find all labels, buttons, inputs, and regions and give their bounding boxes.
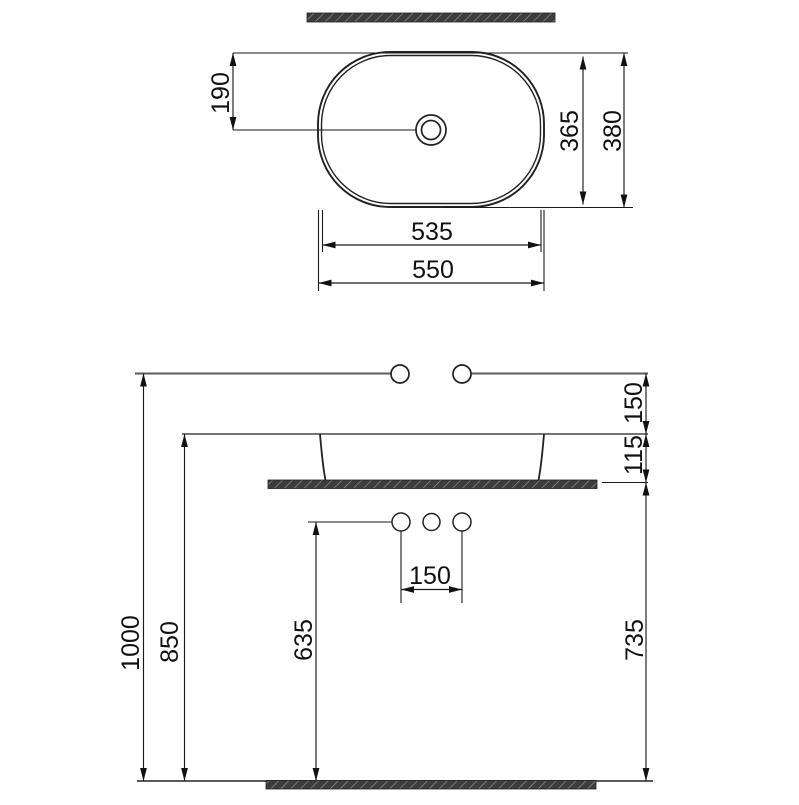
top-view: 190 365 380 535 550 <box>207 13 633 291</box>
front-view: 150 1000 850 635 735 150 <box>117 365 653 789</box>
dim-label-850: 850 <box>156 621 184 663</box>
dim-depth-inner: 365 <box>556 57 584 205</box>
dim-label-550: 550 <box>412 256 454 284</box>
dim-label-380: 380 <box>599 110 627 152</box>
basin-profile-left-edge <box>320 434 326 480</box>
technical-drawing-page: 190 365 380 535 550 <box>0 0 799 800</box>
dim-total-height: 1000 <box>117 374 145 782</box>
dim-drain-from-back: 190 <box>207 53 235 130</box>
dim-width-outer: 550 <box>319 256 545 284</box>
dim-counter-height: 735 <box>621 483 649 782</box>
dim-depth-outer: 380 <box>599 53 627 208</box>
drain-outer-circle <box>416 115 446 145</box>
washbasin-drawing-svg: 190 365 380 535 550 <box>0 0 799 800</box>
dim-basin-above-counter: 115 <box>620 434 648 483</box>
outlet-circle-left <box>392 513 410 531</box>
drain-inner-circle <box>422 121 441 140</box>
dim-supply-above-rim: 150 <box>620 374 648 435</box>
dim-label-365: 365 <box>556 110 584 152</box>
dim-label-150-top: 150 <box>620 382 648 424</box>
countertop-hatch-bar <box>268 480 597 489</box>
dim-rim-height: 850 <box>156 434 185 781</box>
outlet-circle-right <box>453 513 471 531</box>
dim-width-inner: 535 <box>323 218 542 246</box>
supply-circle-left <box>391 365 409 383</box>
dim-label-535: 535 <box>411 218 453 246</box>
basin-profile-right-edge <box>539 434 545 480</box>
dim-label-635: 635 <box>290 619 318 661</box>
dim-label-115: 115 <box>620 435 648 475</box>
dim-label-1000: 1000 <box>117 615 145 671</box>
dim-label-150-spacing: 150 <box>409 562 451 590</box>
dim-drain-outlet-height: 635 <box>290 522 318 781</box>
dim-outlet-spacing: 150 <box>401 562 462 590</box>
floor-hatch-bar <box>266 781 596 790</box>
dim-label-735: 735 <box>621 619 649 661</box>
wall-hatch-bar <box>307 13 555 22</box>
outlet-circle-center <box>423 514 440 531</box>
dim-label-190: 190 <box>207 72 235 114</box>
supply-circle-right <box>453 365 471 383</box>
